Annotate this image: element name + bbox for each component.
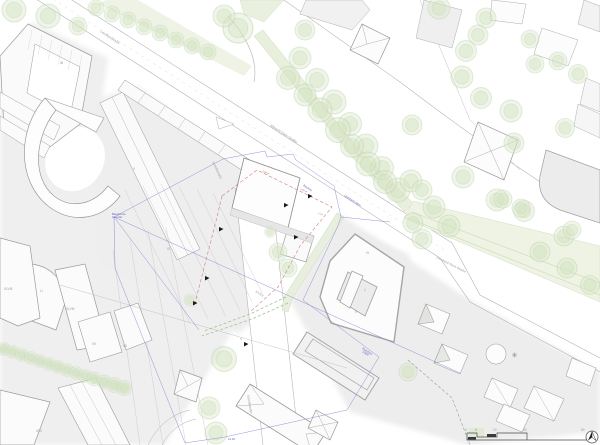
- svg-text:Grundst.: Grundst.: [112, 215, 123, 219]
- svg-text:10: 10: [493, 428, 497, 432]
- svg-text:LI: LI: [40, 289, 43, 293]
- svg-text:VII: VII: [123, 344, 127, 348]
- svg-text:VI: VI: [167, 247, 170, 251]
- svg-text:0: 0: [465, 428, 467, 432]
- svg-text:5: 5: [475, 428, 477, 432]
- svg-text:12.40: 12.40: [228, 437, 235, 441]
- svg-text:4: 4: [240, 337, 242, 341]
- svg-text:XLII: XLII: [36, 429, 42, 433]
- svg-text:XLVIII: XLVIII: [66, 307, 75, 311]
- svg-text:VII: VII: [92, 342, 96, 346]
- svg-text:XLVIII: XLVIII: [4, 287, 13, 291]
- svg-text:VI: VI: [366, 251, 369, 255]
- svg-text:50: 50: [581, 428, 585, 432]
- svg-text:9: 9: [355, 310, 357, 314]
- svg-text:20: 20: [523, 428, 527, 432]
- svg-text:1: 1: [364, 288, 366, 292]
- svg-text:IB: IB: [60, 61, 63, 65]
